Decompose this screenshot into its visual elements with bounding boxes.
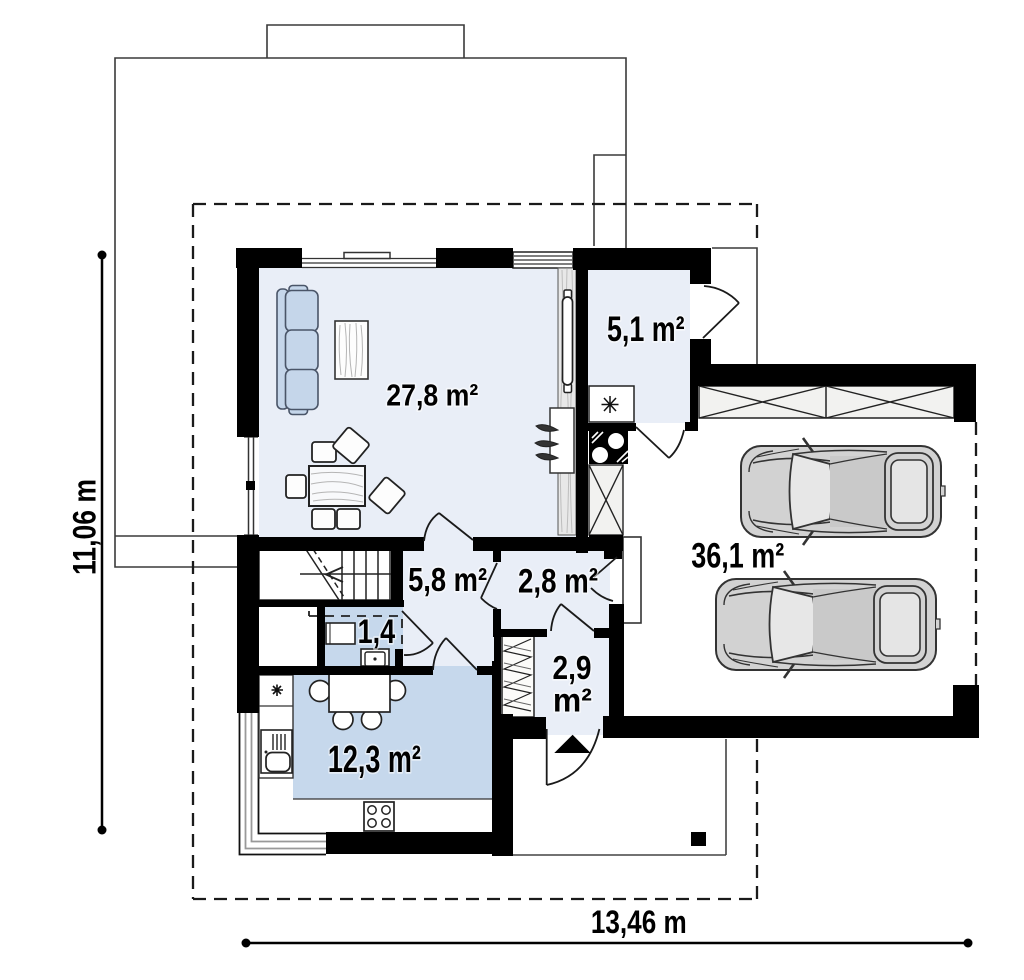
svg-text:2,9: 2,9 [553,650,592,687]
svg-text:11,06 m: 11,06 m [66,479,103,575]
svg-text:27,8 m²: 27,8 m² [386,379,478,413]
svg-text:5,8 m²: 5,8 m² [408,561,487,598]
svg-text:2,8 m²: 2,8 m² [518,562,598,600]
svg-text:12,3 m²: 12,3 m² [328,739,421,781]
svg-text:13,46 m: 13,46 m [591,903,687,940]
svg-text:m²: m² [553,683,592,720]
svg-text:1,4: 1,4 [358,613,396,651]
svg-text:5,1 m²: 5,1 m² [607,310,685,349]
svg-text:36,1 m²: 36,1 m² [691,537,784,576]
